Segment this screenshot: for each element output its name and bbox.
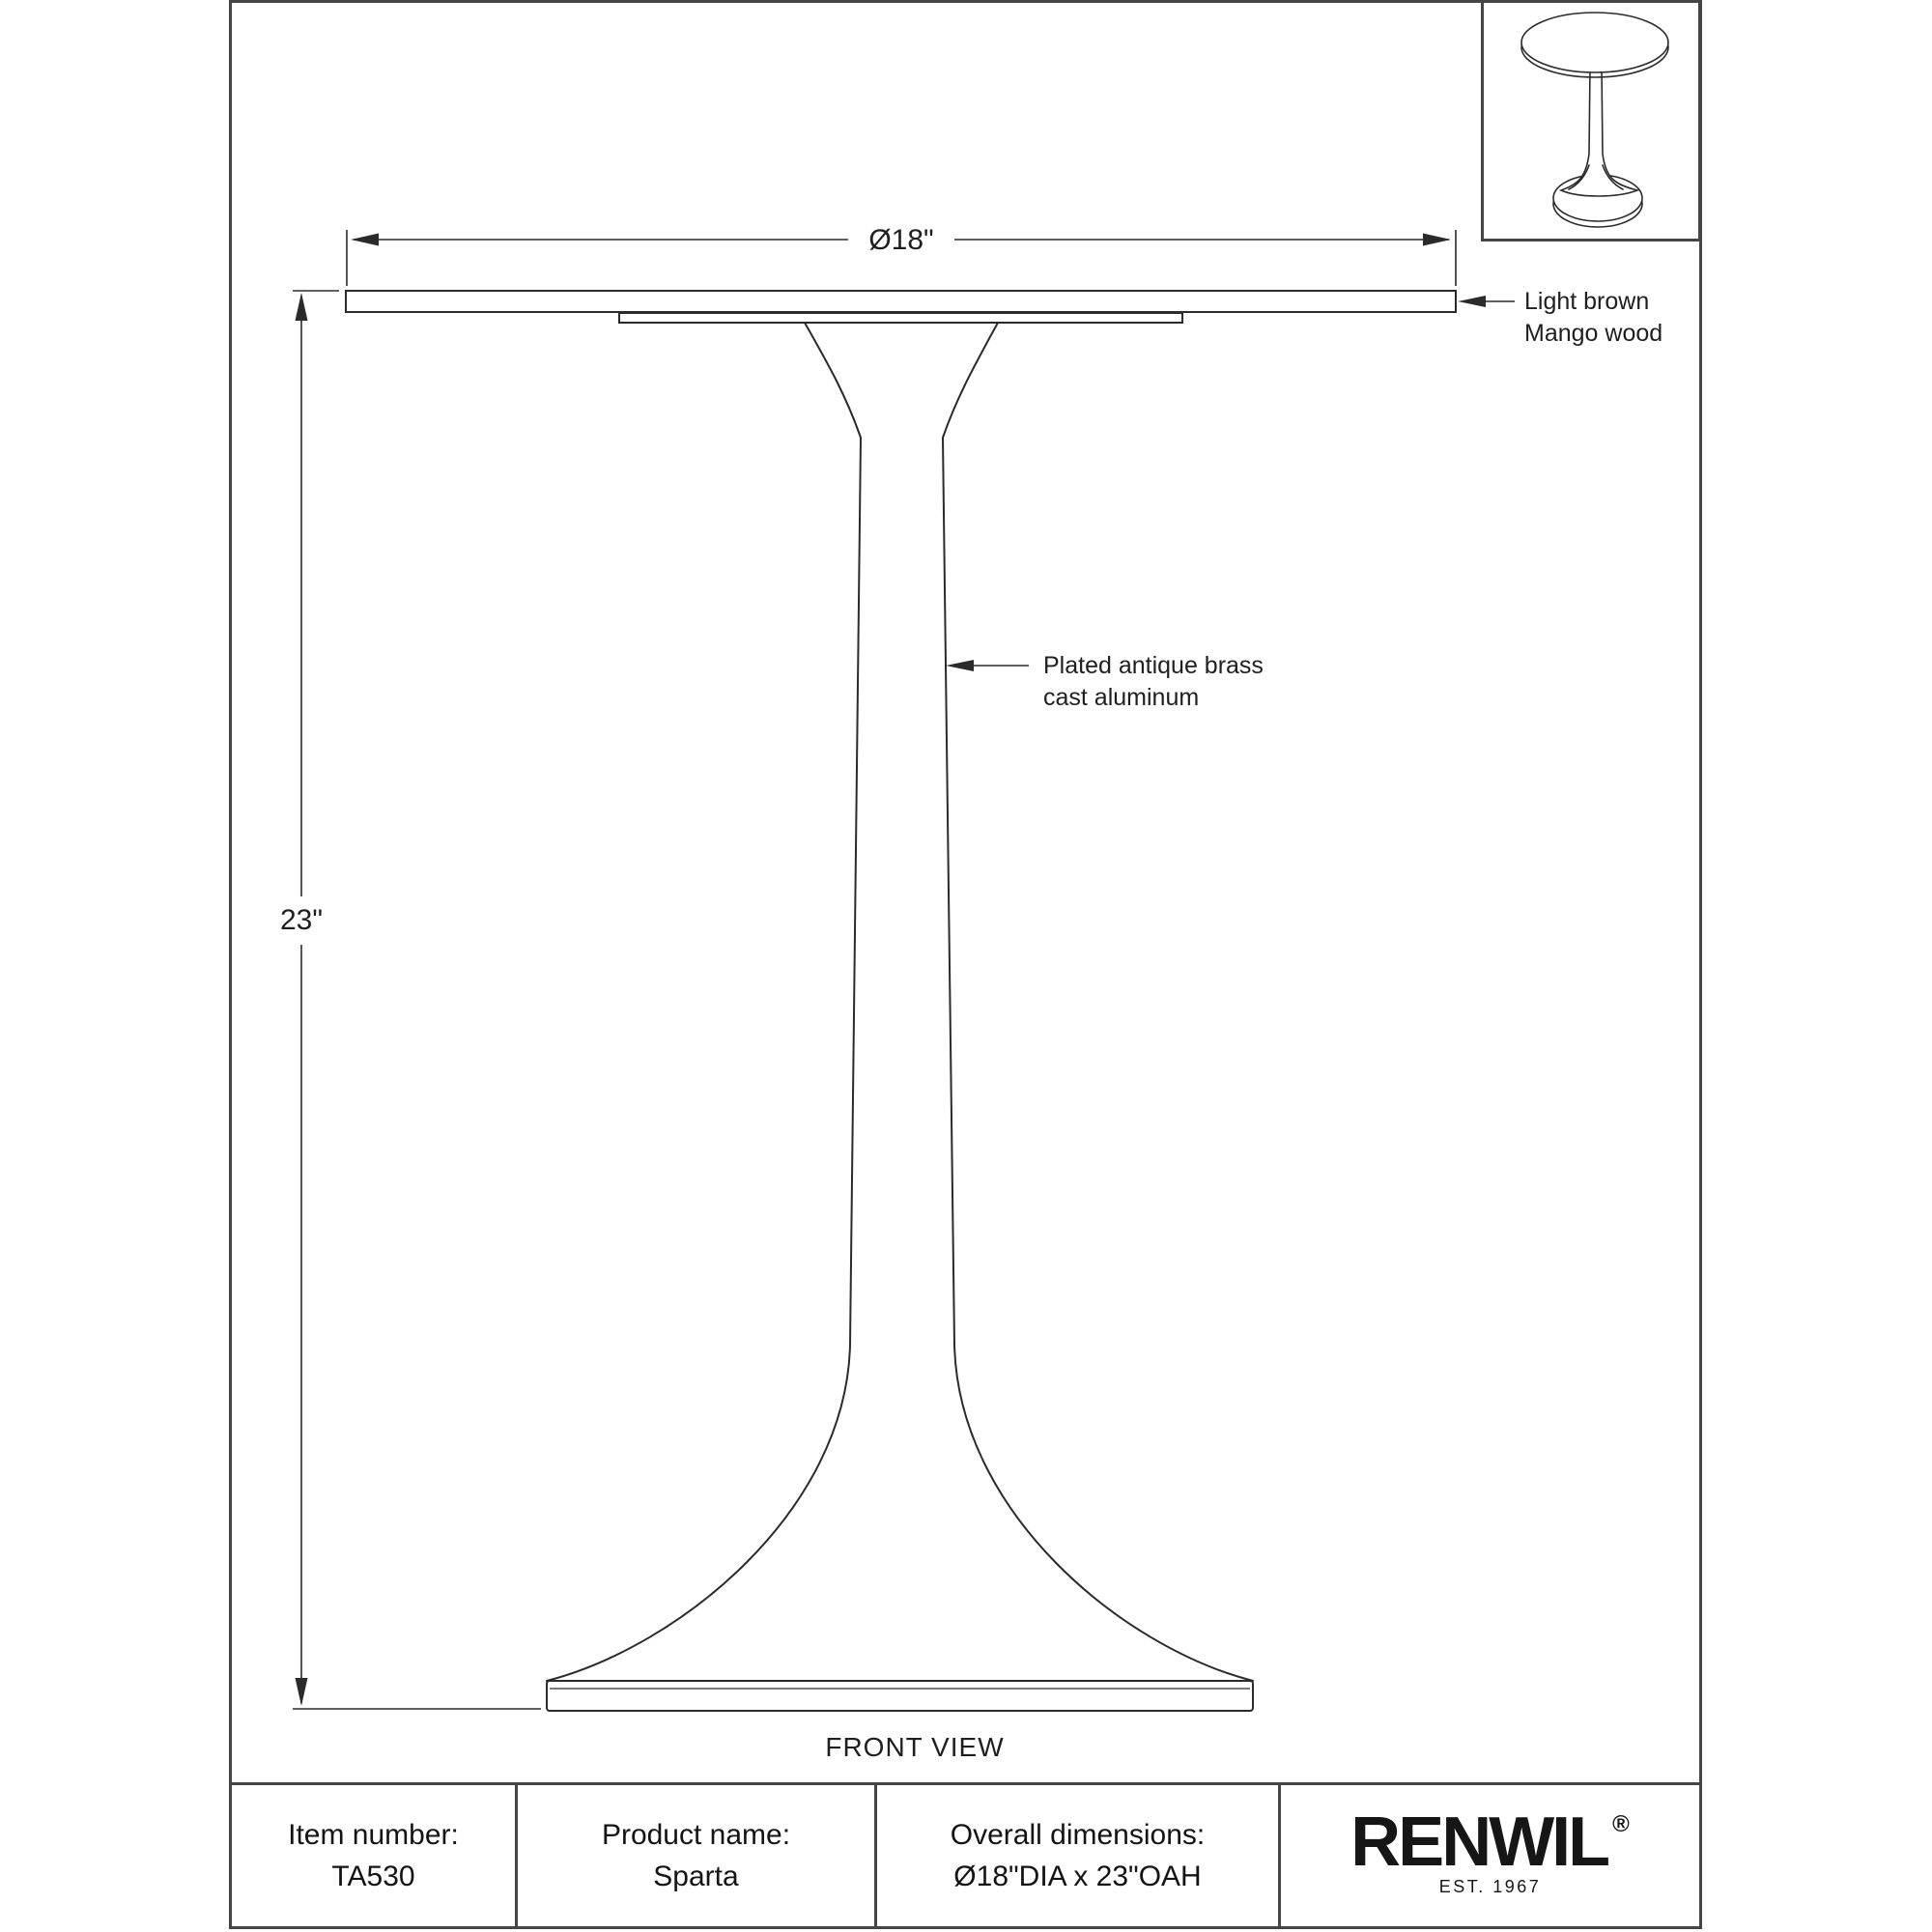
tabletop-material-line1: Light brown <box>1524 286 1662 318</box>
registered-trademark-symbol: ® <box>1612 1813 1630 1836</box>
pedestal-material-line1: Plated antique brass <box>1043 650 1264 682</box>
brand-established-text: EST. 1967 <box>1439 1875 1542 1898</box>
item-number-value: TA530 <box>331 1856 414 1897</box>
overall-dimensions-label: Overall dimensions: <box>951 1814 1205 1856</box>
brand-logo-text: RENWIL <box>1350 1813 1607 1871</box>
overall-dimensions-cell: Overall dimensions: Ø18"DIA x 23"OAH <box>877 1785 1281 1926</box>
brand-cell: RENWIL ® EST. 1967 <box>1281 1785 1699 1926</box>
pedestal-outline <box>547 323 1253 1681</box>
pedestal-material-leader <box>946 660 1029 671</box>
tabletop <box>346 291 1456 312</box>
overall-dimensions-value: Ø18"DIA x 23"OAH <box>953 1856 1201 1897</box>
view-label: FRONT VIEW <box>770 1732 1060 1763</box>
product-name-cell: Product name: Sparta <box>518 1785 877 1926</box>
brand-logo: RENWIL ® <box>1350 1813 1630 1871</box>
pedestal-material-line2: cast aluminum <box>1043 682 1264 714</box>
height-dimension-label: 23" <box>274 896 328 945</box>
info-table: Item number: TA530 Product name: Sparta … <box>229 1782 1702 1929</box>
tabletop-material-line2: Mango wood <box>1524 318 1662 350</box>
base-plate <box>547 1681 1253 1711</box>
pedestal-material-annotation: Plated antique brass cast aluminum <box>1043 650 1264 714</box>
product-name-value: Sparta <box>653 1856 738 1897</box>
spec-sheet-page: Ø18" 23" Light brown Mango wood Plated a… <box>0 0 1932 1932</box>
mounting-plate <box>619 313 1182 323</box>
height-dimension <box>293 291 541 1709</box>
product-name-label: Product name: <box>602 1814 790 1856</box>
diameter-dimension-label: Ø18" <box>848 222 954 259</box>
tabletop-material-annotation: Light brown Mango wood <box>1524 286 1662 350</box>
item-number-label: Item number: <box>288 1814 459 1856</box>
tabletop-material-leader <box>1458 296 1515 307</box>
item-number-cell: Item number: TA530 <box>232 1785 518 1926</box>
